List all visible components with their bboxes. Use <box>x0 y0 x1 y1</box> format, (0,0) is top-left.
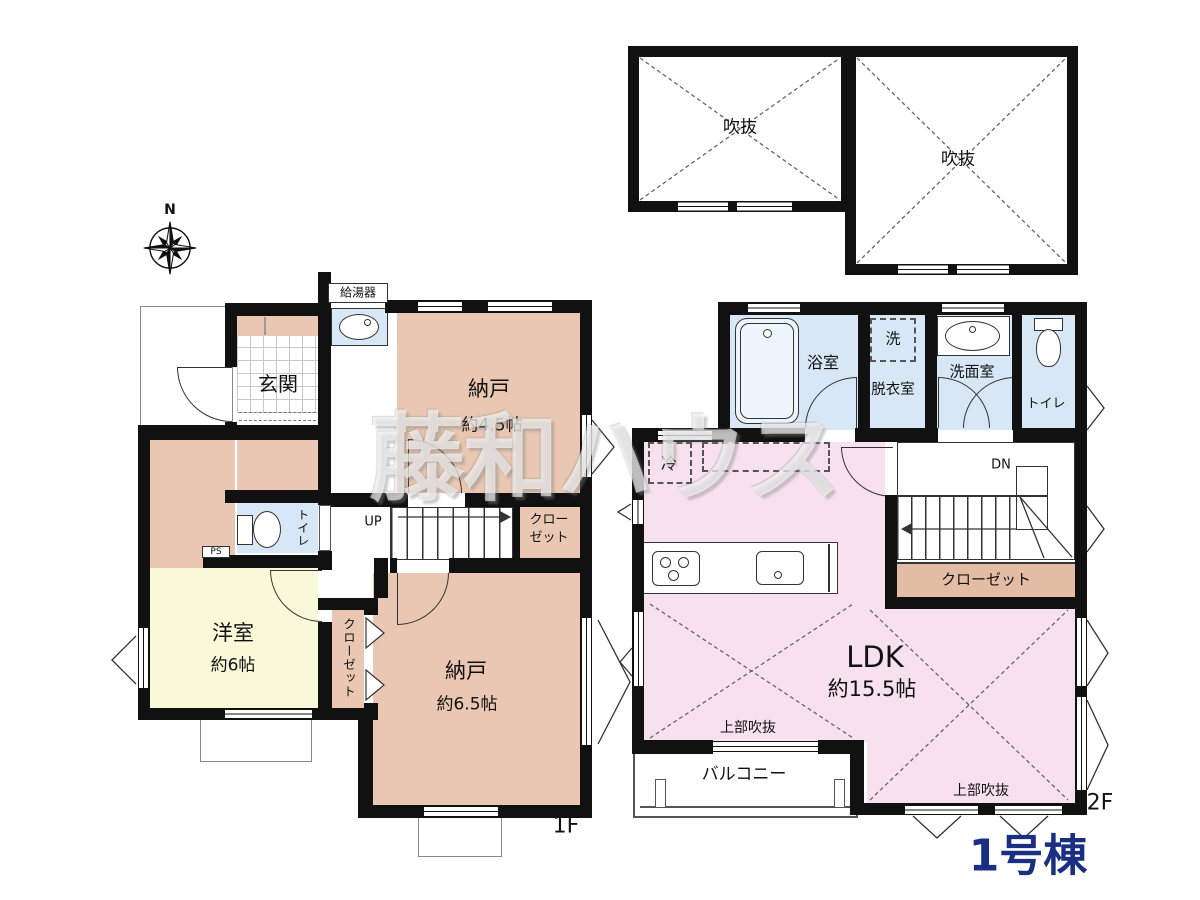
bay-window-box <box>200 718 312 762</box>
toilet-bowl-1f <box>253 511 281 548</box>
fridge-label: 冷 <box>661 455 677 473</box>
toilet-door <box>319 505 331 551</box>
wall <box>1067 46 1078 275</box>
western-room-name: 洋室 <box>212 622 254 646</box>
basin-faucet <box>364 319 371 326</box>
wall <box>628 46 852 57</box>
toilet-label-2f: トイレ <box>1026 398 1065 413</box>
water-heater-label: 給湯器 <box>340 286 376 299</box>
wall <box>225 303 237 367</box>
storage-a-size: 約4.5帖 <box>461 416 522 435</box>
storage-a-name: 納戸 <box>468 378 510 402</box>
window <box>658 430 712 441</box>
void-left-label: 吹抜 <box>723 118 757 137</box>
balcony-inner-line <box>640 806 851 808</box>
storage-b-size: 約6.5帖 <box>436 695 497 714</box>
wall <box>449 558 592 573</box>
toilet-bowl-2f <box>1036 329 1061 367</box>
entrance-label: 玄関 <box>258 373 298 395</box>
wall <box>718 302 730 442</box>
hallway-area <box>237 440 318 490</box>
window-small <box>632 500 644 524</box>
stove-burner <box>678 557 689 568</box>
wall <box>855 428 938 442</box>
dressing-room-label: 脱衣室 <box>871 382 915 398</box>
window <box>1076 697 1087 790</box>
basin-bowl <box>339 314 379 340</box>
wall <box>225 490 330 503</box>
staircase-up <box>390 507 513 560</box>
window <box>633 612 644 686</box>
wall <box>331 493 408 507</box>
void-right-label: 吹抜 <box>941 150 975 169</box>
wall <box>633 740 713 754</box>
wall <box>374 558 388 598</box>
toilet-tank-1f <box>237 515 253 545</box>
stair-closet-label-1: クロー <box>529 514 568 529</box>
window <box>942 303 1004 313</box>
wall <box>364 598 378 615</box>
kitchen-sink <box>756 551 804 585</box>
balcony-post <box>655 779 666 808</box>
wall <box>858 315 870 430</box>
floor1-label: 1F <box>553 815 580 840</box>
bay-window <box>581 618 592 745</box>
building-number-label: 1号棟 <box>969 831 1088 880</box>
wall <box>513 507 520 560</box>
window <box>424 806 498 817</box>
window <box>418 301 462 312</box>
kitchen-sink-drain <box>774 571 782 579</box>
window <box>748 303 800 313</box>
wall <box>885 495 897 602</box>
bathroom-label: 浴室 <box>807 354 839 372</box>
wall <box>1013 428 1075 442</box>
wall <box>632 428 644 754</box>
shoe-cabinet-divider <box>264 317 266 335</box>
floor-plan-canvas: 吹抜 吹抜 N <box>0 0 1200 900</box>
window <box>1076 618 1087 686</box>
window <box>138 628 149 688</box>
stair-closet-label-2: ゼット <box>529 532 568 547</box>
stove <box>652 551 700 586</box>
balcony-label: バルコニー <box>702 765 787 784</box>
wall <box>1012 315 1022 430</box>
window <box>737 202 792 211</box>
wall <box>925 315 937 430</box>
wall <box>465 493 592 507</box>
upper-void-left-label: 上部吹抜 <box>720 721 776 737</box>
window <box>995 805 1062 815</box>
wall <box>845 46 1078 57</box>
staircase-down-treads <box>897 497 1020 560</box>
stove-burner <box>668 570 679 581</box>
western-room-size: 約6帖 <box>211 656 256 675</box>
kitchen-counter-outline <box>702 442 830 472</box>
stove-burner <box>660 557 671 568</box>
pipe-space-label: PS <box>210 547 221 557</box>
compass-north-label: N <box>164 203 176 219</box>
stairs-dn-label: DN <box>991 459 1011 474</box>
wall <box>718 428 805 442</box>
window <box>581 415 592 477</box>
wall <box>140 425 330 440</box>
storage-b-name: 納戸 <box>445 660 487 684</box>
washroom-label: 洗面室 <box>949 364 994 381</box>
wall <box>225 303 330 316</box>
kitchen-island-end <box>828 544 830 592</box>
closet-2f-label: クローゼット <box>941 572 1031 589</box>
bay-window-box <box>418 817 502 857</box>
washer-label: 洗 <box>885 331 900 348</box>
wall <box>318 622 332 720</box>
ldk-name: LDK <box>846 641 904 673</box>
wall <box>318 272 331 505</box>
wall <box>390 558 397 573</box>
entrance-step-lines <box>239 412 316 421</box>
toilet-label-1f: トイレ <box>295 509 308 548</box>
window <box>957 265 1009 274</box>
upper-void-right-label: 上部吹抜 <box>953 784 1009 800</box>
window <box>905 805 978 815</box>
shoe-cabinet <box>237 316 318 336</box>
wall <box>358 720 373 818</box>
compass-rose-icon <box>142 220 198 276</box>
wall <box>885 597 1075 609</box>
floor2-label: 2F <box>1087 792 1114 817</box>
vanity-faucet <box>969 326 976 333</box>
balcony-post <box>834 779 845 808</box>
window <box>898 265 948 274</box>
stairs-up-label: UP <box>364 516 381 531</box>
stair-landing-rect <box>1016 466 1048 530</box>
wall <box>628 46 639 212</box>
window <box>713 741 818 752</box>
window <box>225 709 312 719</box>
ldk-size: 約15.5帖 <box>828 678 917 702</box>
bathtub-drain <box>763 329 772 338</box>
window <box>488 301 552 312</box>
closet-vertical-label: クローゼット <box>341 618 355 699</box>
ldk-living-area <box>867 602 1075 805</box>
wall <box>845 46 856 275</box>
window <box>678 202 728 211</box>
